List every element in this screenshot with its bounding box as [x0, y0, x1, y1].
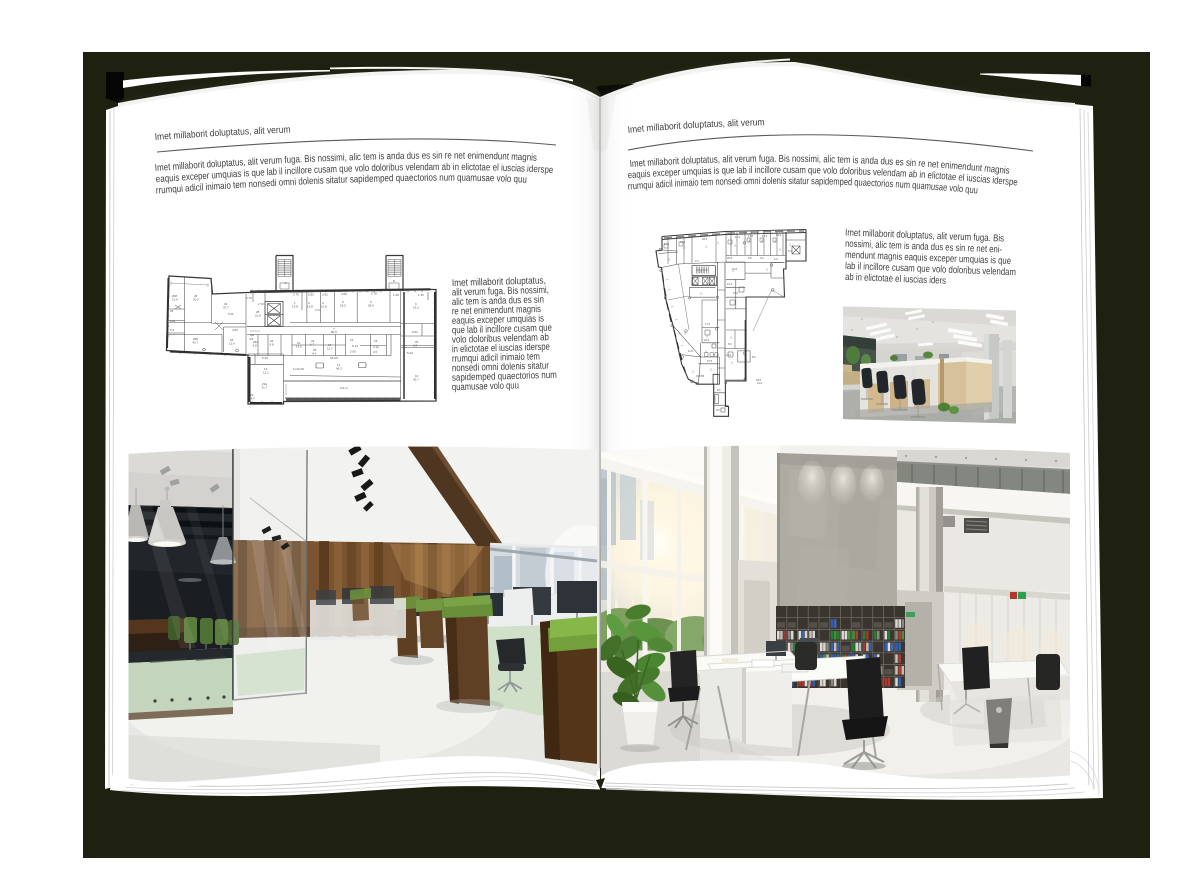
svg-text:30.2: 30.2	[193, 298, 199, 302]
svg-text:15: 15	[374, 339, 378, 343]
svg-text:40.0: 40.0	[702, 237, 708, 241]
svg-text:13.4: 13.4	[727, 282, 733, 286]
svg-text:30.7: 30.7	[413, 378, 419, 382]
svg-text:2.70: 2.70	[246, 296, 252, 300]
svg-text:34.7: 34.7	[249, 397, 255, 401]
svg-text:A: A	[285, 281, 287, 285]
svg-text:19.2: 19.2	[413, 306, 419, 310]
svg-text:Б: Б	[393, 279, 395, 283]
svg-text:4.12: 4.12	[373, 345, 379, 349]
svg-text:9.8: 9.8	[270, 343, 275, 347]
svg-text:31.6: 31.6	[732, 267, 738, 271]
svg-text:4.03: 4.03	[232, 328, 238, 332]
svg-text:10a: 10a	[170, 319, 175, 323]
svg-text:8.6: 8.6	[752, 355, 756, 359]
svg-text:3.8: 3.8	[413, 344, 418, 348]
svg-text:14.5: 14.5	[296, 345, 302, 349]
svg-text:4.8: 4.8	[249, 337, 254, 341]
svg-text:25.00: 25.00	[330, 356, 338, 360]
svg-text:28.6: 28.6	[368, 304, 374, 308]
svg-text:16.9: 16.9	[776, 233, 782, 237]
svg-text:16: 16	[350, 338, 354, 342]
svg-text:46.3: 46.3	[336, 367, 342, 371]
svg-text:4.5: 4.5	[373, 350, 378, 354]
svg-text:2-й эт: 2-й эт	[340, 386, 349, 390]
svg-text:13.6: 13.6	[726, 353, 732, 357]
svg-text:165.58: 165.58	[696, 374, 704, 378]
svg-text:26: 26	[170, 309, 174, 313]
svg-text:31.7: 31.7	[262, 386, 268, 390]
svg-text:37.7: 37.7	[223, 306, 229, 310]
svg-text:14.6: 14.6	[664, 242, 670, 246]
svg-text:5.14: 5.14	[352, 344, 358, 348]
svg-text:2.92: 2.92	[322, 293, 328, 297]
svg-text:3.09: 3.09	[341, 292, 347, 296]
svg-text:17.2: 17.2	[735, 235, 741, 239]
svg-text:2.72: 2.72	[258, 302, 264, 306]
svg-text:1.45: 1.45	[418, 293, 424, 297]
svg-text:17.0: 17.0	[705, 322, 711, 326]
svg-text:13.8: 13.8	[292, 305, 298, 309]
svg-text:3.75: 3.75	[293, 293, 299, 297]
svg-text:18.5: 18.5	[340, 304, 346, 308]
svg-text:5.43: 5.43	[262, 356, 268, 360]
svg-text:11.8: 11.8	[688, 349, 693, 353]
svg-text:quamusae volo quu: quamusae volo quu	[452, 380, 519, 393]
svg-text:15.0: 15.0	[733, 291, 739, 295]
svg-text:12.6: 12.6	[172, 298, 178, 302]
svg-text:42.7: 42.7	[193, 341, 199, 345]
svg-text:11.7: 11.7	[327, 347, 333, 351]
svg-text:2.2: 2.2	[695, 259, 699, 263]
svg-text:21.8: 21.8	[255, 314, 261, 318]
svg-text:5.2: 5.2	[170, 328, 175, 332]
svg-text:5.11: 5.11	[228, 312, 234, 316]
svg-text:4.4: 4.4	[312, 352, 317, 356]
svg-text:5.54: 5.54	[412, 330, 418, 334]
svg-text:3.78: 3.78	[371, 292, 377, 296]
svg-text:6.7: 6.7	[310, 343, 315, 347]
svg-text:1.45: 1.45	[393, 293, 399, 297]
svg-text:17.6: 17.6	[748, 234, 754, 238]
svg-text:12.0: 12.0	[757, 381, 763, 385]
svg-text:80.9: 80.9	[331, 330, 337, 334]
svg-text:5.4: 5.4	[788, 249, 792, 253]
svg-text:11.8: 11.8	[321, 305, 327, 309]
svg-text:5.6: 5.6	[728, 342, 732, 346]
svg-text:1=42.00: 1=42.00	[293, 367, 304, 371]
svg-text:9.9: 9.9	[716, 408, 720, 412]
svg-text:2.6: 2.6	[774, 257, 778, 261]
svg-text:2.80: 2.80	[308, 293, 314, 297]
svg-text:4.8: 4.8	[253, 344, 258, 348]
svg-text:2.00: 2.00	[350, 350, 356, 354]
svg-text:13.8: 13.8	[307, 305, 313, 309]
svg-text:3.2: 3.2	[760, 256, 764, 260]
svg-text:12.6: 12.6	[229, 342, 235, 346]
svg-text:5.8: 5.8	[748, 256, 752, 260]
svg-text:16.6: 16.6	[704, 338, 710, 342]
svg-text:17.3: 17.3	[762, 234, 768, 238]
svg-text:15.8: 15.8	[680, 240, 686, 244]
svg-text:13.1: 13.1	[263, 371, 269, 375]
svg-text:5.43: 5.43	[407, 351, 413, 355]
svg-text:30.5: 30.5	[727, 256, 733, 260]
svg-text:27.5: 27.5	[707, 359, 713, 363]
svg-text:6.6: 6.6	[717, 388, 721, 392]
